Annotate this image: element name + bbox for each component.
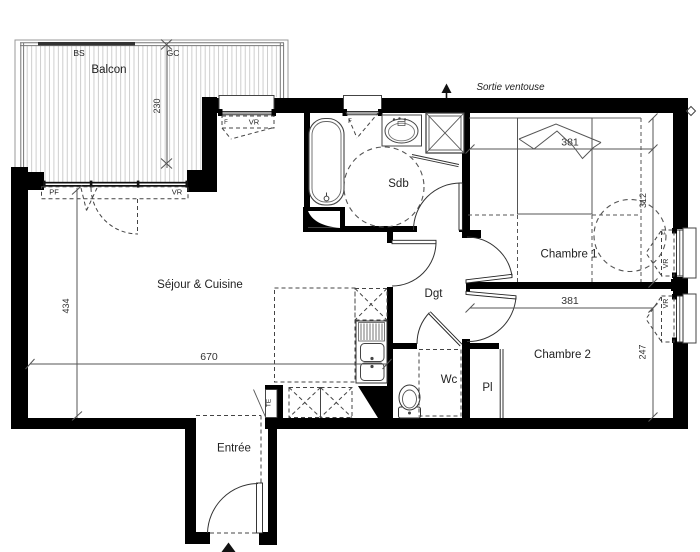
svg-text:F: F [348, 119, 352, 125]
svg-text:VR: VR [663, 259, 670, 269]
svg-text:247: 247 [638, 344, 648, 359]
svg-text:Dgt: Dgt [425, 288, 444, 300]
svg-text:F: F [662, 231, 668, 235]
svg-text:Entrée: Entrée [217, 443, 251, 455]
svg-text:230: 230 [152, 98, 162, 113]
svg-text:BS: BS [73, 48, 85, 58]
svg-text:Chambre 2: Chambre 2 [534, 349, 591, 361]
svg-text:Wc: Wc [441, 374, 458, 386]
svg-text:GC: GC [167, 48, 180, 58]
svg-text:Sortie ventouse: Sortie ventouse [476, 82, 545, 93]
svg-text:381: 381 [561, 137, 579, 149]
svg-text:670: 670 [200, 351, 218, 363]
svg-text:VR: VR [249, 118, 260, 127]
svg-text:312: 312 [638, 193, 648, 208]
svg-text:Pl: Pl [482, 382, 492, 394]
svg-text:PF: PF [49, 188, 59, 197]
svg-text:381: 381 [561, 295, 579, 307]
svg-text:VR: VR [663, 299, 670, 309]
svg-text:Chambre 1: Chambre 1 [541, 249, 598, 261]
svg-text:Sdb: Sdb [388, 178, 408, 190]
svg-text:F: F [224, 120, 228, 126]
svg-text:TE: TE [266, 398, 273, 407]
svg-text:VR: VR [172, 188, 183, 197]
svg-text:Séjour & Cuisine: Séjour & Cuisine [157, 279, 243, 291]
svg-text:434: 434 [61, 298, 71, 313]
svg-text:Balcon: Balcon [91, 64, 126, 76]
